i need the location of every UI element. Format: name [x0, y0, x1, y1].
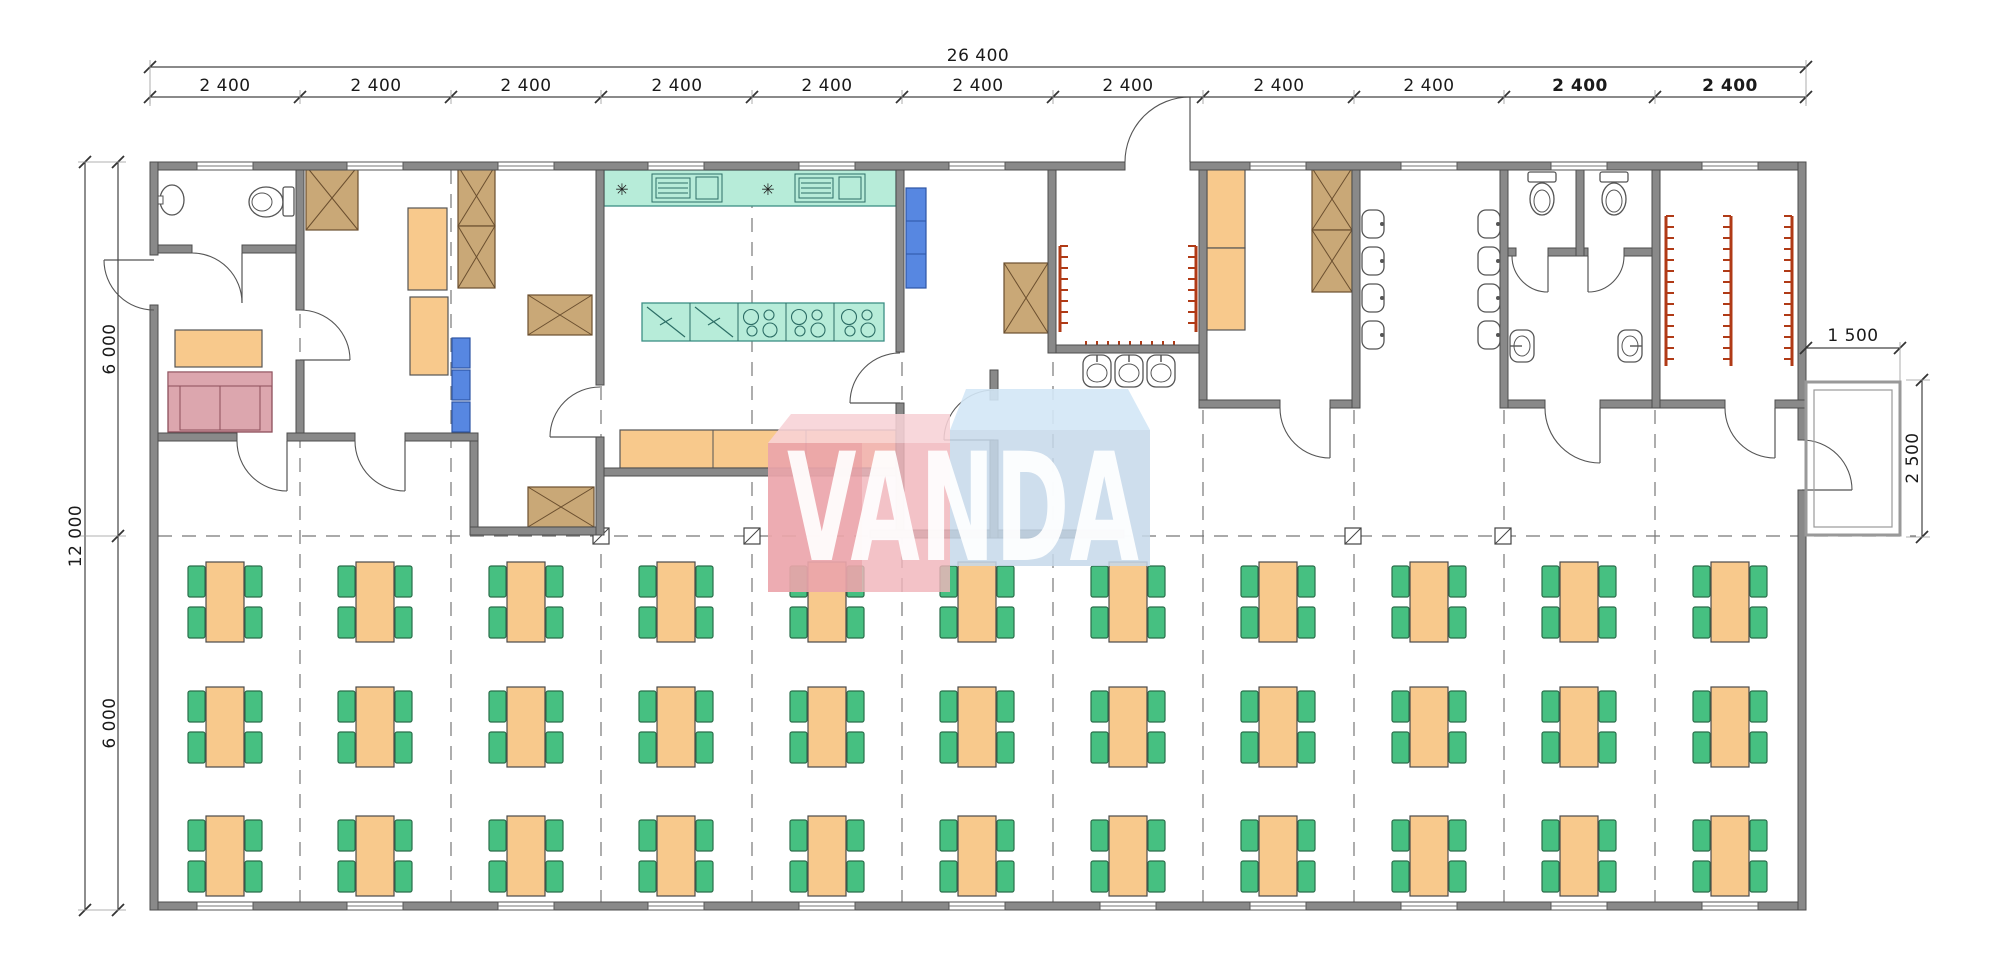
dining-table: [808, 816, 846, 896]
chair: [1599, 732, 1616, 763]
chair: [546, 691, 563, 722]
wall: [150, 162, 158, 255]
chair: [395, 607, 412, 638]
wall: [1352, 170, 1360, 408]
chair: [338, 691, 355, 722]
wall: [1775, 400, 1806, 408]
door-swing-icon: [850, 353, 900, 403]
chair: [546, 607, 563, 638]
chair: [1599, 861, 1616, 892]
wall: [1576, 170, 1584, 256]
chair: [1091, 691, 1108, 722]
chair: [395, 820, 412, 851]
wall: [1660, 400, 1725, 408]
dim-label-module-8: 2 400: [1253, 76, 1304, 96]
chair: [489, 566, 506, 597]
dining-table: [1560, 562, 1598, 642]
door-swing-icon: [355, 441, 405, 491]
dining-table: [206, 562, 244, 642]
chair: [997, 861, 1014, 892]
chair: [1392, 566, 1409, 597]
dining-table: [206, 687, 244, 767]
urinal-icon: [1496, 296, 1500, 300]
wall: [470, 527, 604, 535]
chair: [1298, 861, 1315, 892]
chair: [1599, 691, 1616, 722]
wall: [1048, 170, 1056, 353]
dining-table: [1410, 687, 1448, 767]
dining-table-group: [790, 816, 864, 896]
dining-tables: [188, 562, 1767, 896]
chair: [1392, 820, 1409, 851]
dim-height-half-2: 6 000: [100, 697, 120, 748]
chair: [489, 732, 506, 763]
chair: [1392, 861, 1409, 892]
sofa-icon: [168, 372, 272, 386]
chair: [245, 732, 262, 763]
chair: [639, 691, 656, 722]
dining-table-group: [489, 562, 563, 642]
wall: [1508, 400, 1545, 408]
dim-label-module-3: 2 400: [500, 76, 551, 96]
dining-table: [206, 816, 244, 896]
door-swing-icon: [550, 387, 600, 437]
dim-label-module-10: 2 400: [1552, 76, 1608, 96]
chair: [1750, 691, 1767, 722]
wall: [596, 437, 604, 535]
chair: [1542, 861, 1559, 892]
wall: [470, 441, 478, 535]
dining-table: [657, 816, 695, 896]
urinal-icon: [1496, 222, 1500, 226]
dining-table-group: [1091, 687, 1165, 767]
chair: [1241, 732, 1258, 763]
chair: [1148, 732, 1165, 763]
watermark: VANDA: [768, 389, 1150, 596]
chair: [696, 566, 713, 597]
chair: [1298, 691, 1315, 722]
dim-label-module-6: 2 400: [952, 76, 1003, 96]
wall: [1600, 400, 1652, 408]
dining-table-group: [639, 816, 713, 896]
chair: [1148, 566, 1165, 597]
wall: [242, 245, 304, 253]
chair: [1298, 607, 1315, 638]
dining-table-group: [1241, 562, 1315, 642]
wall: [1199, 170, 1207, 408]
chair: [1542, 732, 1559, 763]
dining-table: [1711, 687, 1749, 767]
floor-plan-canvas: ✳✳ VANDA 26 400 2 4002 4002 4002 4002 40…: [0, 0, 2000, 975]
toilet-icon: [283, 187, 294, 216]
dining-table-group: [1542, 687, 1616, 767]
chair: [1241, 607, 1258, 638]
door-swing-icon: [1588, 256, 1624, 292]
chair: [1148, 820, 1165, 851]
chair: [1542, 820, 1559, 851]
chair: [188, 820, 205, 851]
chair: [489, 861, 506, 892]
wall: [150, 305, 158, 910]
chair: [639, 820, 656, 851]
chair: [245, 820, 262, 851]
dining-table-group: [1241, 687, 1315, 767]
wall: [158, 245, 192, 253]
chair: [489, 607, 506, 638]
wall: [1798, 490, 1806, 910]
urinal-icon: [1380, 222, 1384, 226]
chair: [188, 861, 205, 892]
chair: [1750, 732, 1767, 763]
chair: [1693, 566, 1710, 597]
wall: [1508, 248, 1516, 256]
wall: [1652, 170, 1660, 408]
dining-table: [356, 562, 394, 642]
chair: [1449, 861, 1466, 892]
shelf-blue: [452, 338, 470, 368]
dining-table: [507, 816, 545, 896]
chair: [790, 691, 807, 722]
dining-table-group: [1693, 687, 1767, 767]
dim-label-module-4: 2 400: [651, 76, 702, 96]
dining-table-group: [1392, 562, 1466, 642]
chair: [338, 566, 355, 597]
dim-label-module-9: 2 400: [1403, 76, 1454, 96]
floor-plan-drawing: ✳✳ VANDA: [0, 0, 2000, 975]
chair: [245, 566, 262, 597]
dining-table: [1711, 562, 1749, 642]
chair: [1750, 861, 1767, 892]
chair: [1392, 607, 1409, 638]
chair: [847, 861, 864, 892]
chair: [847, 820, 864, 851]
dining-table: [1560, 687, 1598, 767]
door-swing-icon: [237, 441, 287, 491]
chair: [1542, 566, 1559, 597]
door-swing-icon: [1802, 440, 1852, 490]
chair: [696, 861, 713, 892]
burner-star-icon: ✳: [615, 180, 628, 199]
wall: [405, 433, 478, 441]
chair: [546, 566, 563, 597]
chair: [1693, 691, 1710, 722]
dining-table: [507, 562, 545, 642]
porch: [1806, 382, 1900, 535]
dining-table-group: [338, 816, 412, 896]
porch: [1814, 390, 1892, 527]
chair: [790, 820, 807, 851]
dining-table: [1109, 687, 1147, 767]
door-swing-icon: [192, 253, 242, 303]
dim-label-module-7: 2 400: [1102, 76, 1153, 96]
toilet-icon: [1602, 183, 1626, 215]
urinal-icon: [1380, 333, 1384, 337]
chair: [245, 861, 262, 892]
dining-table-group: [790, 687, 864, 767]
chair: [997, 732, 1014, 763]
toilet-icon: [1530, 183, 1554, 215]
chair: [395, 566, 412, 597]
chair: [1241, 861, 1258, 892]
sofa-icon: [180, 386, 220, 430]
dim-label-module-11: 2 400: [1702, 76, 1758, 96]
dining-table: [1259, 562, 1297, 642]
dining-table: [657, 687, 695, 767]
dining-table: [1410, 562, 1448, 642]
toilet-icon: [1528, 172, 1556, 182]
dining-table: [958, 687, 996, 767]
dining-table: [1259, 816, 1297, 896]
dining-table-group: [338, 562, 412, 642]
urinal-icon: [1380, 259, 1384, 263]
chair: [790, 861, 807, 892]
chair: [940, 861, 957, 892]
chair: [1298, 732, 1315, 763]
chair: [1542, 691, 1559, 722]
dining-table: [1259, 687, 1297, 767]
dining-table-group: [489, 816, 563, 896]
dining-table-group: [1392, 816, 1466, 896]
chair: [1241, 691, 1258, 722]
lounge-table: [175, 330, 262, 367]
chair: [1148, 861, 1165, 892]
chair: [940, 732, 957, 763]
dining-table: [808, 687, 846, 767]
sofa-icon: [220, 386, 260, 430]
wall: [1624, 248, 1652, 256]
chair: [639, 566, 656, 597]
door-swing-icon: [1725, 408, 1775, 458]
chair: [696, 607, 713, 638]
chair: [338, 861, 355, 892]
cabinet: [408, 208, 447, 290]
dining-table-group: [1091, 816, 1165, 896]
chair: [1693, 861, 1710, 892]
chair: [489, 820, 506, 851]
door-swing-icon: [1280, 408, 1330, 458]
dining-table-group: [639, 562, 713, 642]
chair: [188, 691, 205, 722]
wall: [158, 433, 237, 441]
wall: [296, 170, 304, 310]
shelf-blue: [906, 188, 926, 288]
dining-table-group: [489, 687, 563, 767]
chair: [188, 732, 205, 763]
chair: [997, 607, 1014, 638]
chair: [1693, 607, 1710, 638]
dim-label-module-5: 2 400: [801, 76, 852, 96]
dining-table-group: [1693, 816, 1767, 896]
wall: [1500, 170, 1508, 408]
chair: [1449, 607, 1466, 638]
dining-table-group: [639, 687, 713, 767]
chair: [1392, 691, 1409, 722]
dining-table: [958, 816, 996, 896]
chair: [1542, 607, 1559, 638]
chair: [940, 820, 957, 851]
chair: [1148, 607, 1165, 638]
burner-star-icon: ✳: [761, 180, 774, 199]
chair: [696, 732, 713, 763]
chair: [639, 607, 656, 638]
wall: [596, 170, 604, 385]
dining-table-group: [188, 816, 262, 896]
dim-porch-width: 1 500: [1827, 326, 1878, 346]
dining-table-group: [940, 687, 1014, 767]
dim-total-height: 12 000: [66, 505, 86, 567]
chair: [245, 607, 262, 638]
chair: [338, 732, 355, 763]
toilet-icon: [252, 193, 272, 211]
chair: [1241, 820, 1258, 851]
dining-table-group: [188, 562, 262, 642]
dining-table: [1109, 816, 1147, 896]
chair: [546, 861, 563, 892]
chair: [696, 820, 713, 851]
chair: [1599, 820, 1616, 851]
chair: [1750, 607, 1767, 638]
chair: [489, 691, 506, 722]
dining-table: [1410, 816, 1448, 896]
chair: [1449, 732, 1466, 763]
chair: [1449, 566, 1466, 597]
shelf-blue: [452, 402, 470, 432]
wall: [296, 360, 304, 441]
chair: [1449, 820, 1466, 851]
chair: [940, 607, 957, 638]
chair: [1091, 607, 1108, 638]
chair: [1091, 732, 1108, 763]
dining-table: [356, 816, 394, 896]
door-swing-icon: [300, 310, 350, 360]
door-swing-icon: [1125, 97, 1190, 162]
chair: [1599, 566, 1616, 597]
chair: [696, 691, 713, 722]
urinal-icon: [1496, 333, 1500, 337]
chair: [847, 607, 864, 638]
dim-porch-depth: 2 500: [1903, 432, 1923, 483]
dining-table: [356, 687, 394, 767]
chair: [1091, 820, 1108, 851]
door-swing-icon: [1545, 408, 1600, 463]
chair: [790, 607, 807, 638]
door-swing-icon: [104, 260, 154, 310]
dim-label-module-1: 2 400: [199, 76, 250, 96]
urinal-icon: [1496, 259, 1500, 263]
chair: [1750, 820, 1767, 851]
chair: [639, 732, 656, 763]
wall: [1330, 400, 1352, 408]
chair: [395, 691, 412, 722]
chair: [395, 861, 412, 892]
chair: [245, 691, 262, 722]
chair: [188, 607, 205, 638]
locker: [1207, 248, 1245, 330]
chair: [1693, 732, 1710, 763]
chair: [546, 732, 563, 763]
washbasin-icon: [158, 196, 163, 204]
porch: [1806, 382, 1900, 535]
dining-table: [507, 687, 545, 767]
chair: [1392, 732, 1409, 763]
chair: [847, 732, 864, 763]
dim-height-half-1: 6 000: [100, 323, 120, 374]
dining-table-group: [1542, 816, 1616, 896]
toilet-icon: [1600, 172, 1628, 182]
dim-total-width: 26 400: [947, 46, 1009, 66]
wall: [287, 433, 355, 441]
dining-table-group: [188, 687, 262, 767]
dining-table-group: [1241, 816, 1315, 896]
chair: [1241, 566, 1258, 597]
chair: [1148, 691, 1165, 722]
wall: [1056, 345, 1199, 353]
wall: [896, 170, 904, 352]
chair: [1091, 861, 1108, 892]
chair: [1449, 691, 1466, 722]
chair: [1693, 820, 1710, 851]
wall: [1199, 400, 1280, 408]
cabinet: [410, 297, 448, 375]
chair: [790, 732, 807, 763]
chair: [639, 861, 656, 892]
chair: [997, 820, 1014, 851]
door-swing-icon: [1512, 256, 1548, 292]
locker: [1207, 168, 1245, 248]
chair: [1298, 820, 1315, 851]
chair: [546, 820, 563, 851]
dining-table-group: [1693, 562, 1767, 642]
chair: [1750, 566, 1767, 597]
chair: [940, 691, 957, 722]
shelf-blue: [452, 370, 470, 400]
chair: [1298, 566, 1315, 597]
chair: [395, 732, 412, 763]
washbasin-icon: [160, 185, 184, 215]
chair: [188, 566, 205, 597]
urinal-icon: [1380, 296, 1384, 300]
chair: [338, 820, 355, 851]
chair: [847, 691, 864, 722]
chair: [338, 607, 355, 638]
dining-table: [657, 562, 695, 642]
dining-table-group: [940, 816, 1014, 896]
dim-label-module-2: 2 400: [350, 76, 401, 96]
dining-table: [1711, 816, 1749, 896]
dining-table: [1560, 816, 1598, 896]
chair: [1599, 607, 1616, 638]
dining-table-group: [1392, 687, 1466, 767]
dining-table-group: [338, 687, 412, 767]
watermark-text: VANDA: [787, 422, 1139, 596]
sink-counter-icon: [604, 170, 896, 206]
dining-table-group: [1542, 562, 1616, 642]
chair: [997, 691, 1014, 722]
